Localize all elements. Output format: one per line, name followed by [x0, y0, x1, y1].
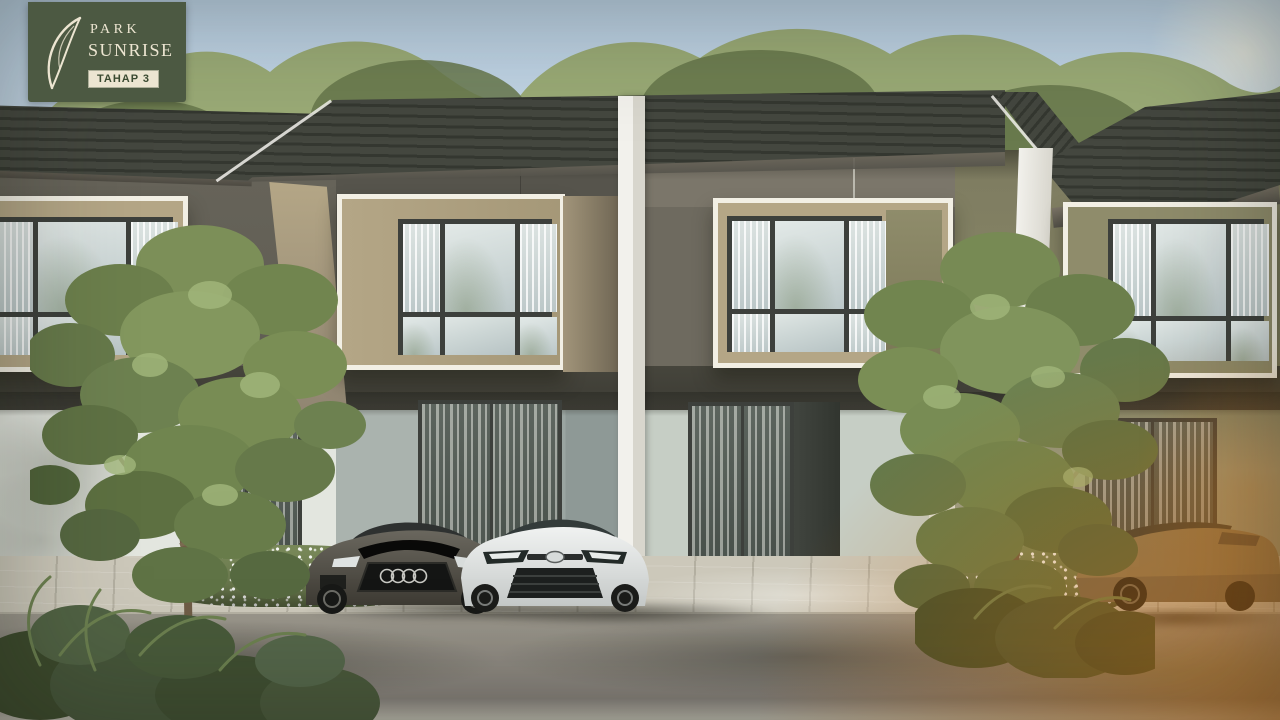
toyota-badge: [546, 552, 564, 563]
park-sunrise-logo: PARK SUNRISE TAHAP 3: [28, 2, 186, 102]
wheel: [611, 584, 639, 612]
window-unit2: [398, 219, 552, 355]
window-box-unit2: [337, 194, 565, 370]
leaf-swoosh-icon: [36, 12, 86, 92]
fern-bushes-left: [0, 535, 380, 720]
wheel: [471, 584, 499, 612]
logo-phase-badge: TAHAP 3: [88, 70, 159, 88]
glass-door-unit3: [688, 402, 794, 562]
logo-line1: PARK: [90, 22, 140, 38]
fern-bushes-right: [915, 548, 1155, 678]
wheel: [1225, 581, 1255, 611]
townhouse-render-scene: PARK SUNRISE TAHAP 3: [0, 0, 1280, 720]
logo-line2: SUNRISE: [88, 40, 174, 61]
tan-panel-behind-pillar: [563, 196, 620, 372]
car-white-sedan: [455, 486, 655, 621]
